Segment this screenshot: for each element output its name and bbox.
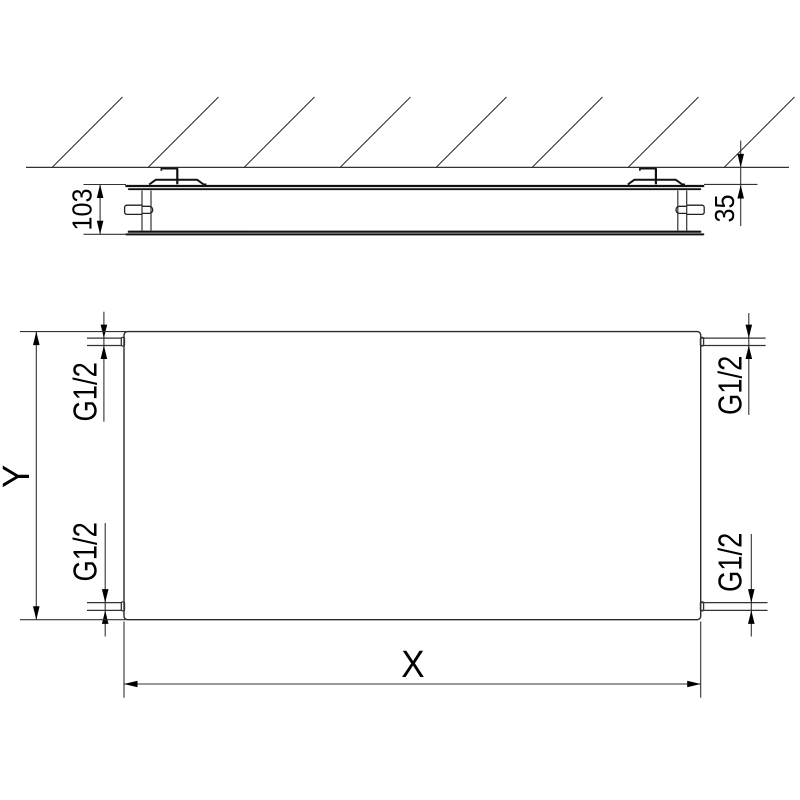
svg-text:G1/2: G1/2 — [713, 533, 749, 592]
svg-text:X: X — [401, 643, 424, 686]
svg-text:35: 35 — [709, 194, 741, 222]
svg-text:Y: Y — [0, 465, 38, 488]
svg-text:G1/2: G1/2 — [68, 362, 104, 421]
svg-text:G1/2: G1/2 — [68, 522, 104, 581]
svg-text:G1/2: G1/2 — [713, 356, 749, 415]
svg-text:103: 103 — [66, 188, 98, 230]
